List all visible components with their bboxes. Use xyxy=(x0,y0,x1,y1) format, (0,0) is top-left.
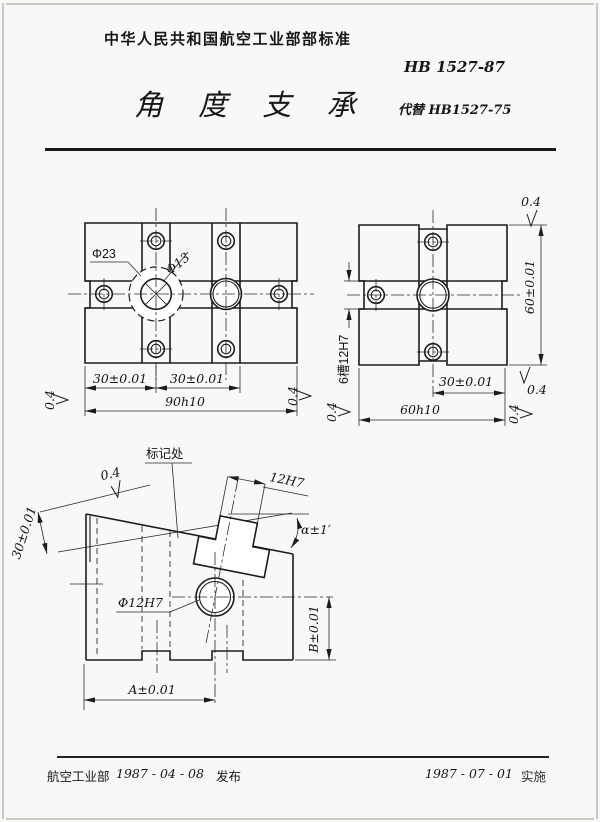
section-dim-30: 30±0.01 xyxy=(8,505,47,561)
side-finish-bottom-left: 0.4 xyxy=(324,402,350,422)
svg-text:B±0.01: B±0.01 xyxy=(306,605,321,654)
side-finish-right: 0.4 xyxy=(520,367,547,397)
svg-text:0.4: 0.4 xyxy=(521,194,541,209)
svg-text:α±1′: α±1′ xyxy=(301,522,331,537)
side-dim-width: 60h10 xyxy=(400,402,440,417)
drawing-canvas: Φ23 Φ13 30±0.01 30±0.01 90h10 0.4 0.4 xyxy=(0,0,600,822)
front-finish-left: 0.4 xyxy=(42,390,68,410)
svg-text:0.4: 0.4 xyxy=(527,382,547,397)
footer-rule xyxy=(57,756,549,758)
front-small-holes xyxy=(96,233,288,358)
side-bottom-dimensions: 30±0.01 60h10 xyxy=(359,368,505,426)
section-view: 标记处 12H7 α±1′ 30±0.01 0.4 Φ12H7 xyxy=(8,447,336,710)
svg-text:0.4: 0.4 xyxy=(324,402,339,422)
svg-text:0.4: 0.4 xyxy=(42,390,57,410)
svg-text:A±0.01: A±0.01 xyxy=(127,682,175,697)
footer-impl-label: 实施 xyxy=(521,766,546,785)
svg-text:30±0.01: 30±0.01 xyxy=(8,505,39,561)
section-slot-dim: 12H7 xyxy=(220,469,308,523)
front-outline xyxy=(85,223,297,363)
front-dim-30-right: 30±0.01 xyxy=(170,371,224,386)
svg-text:0.4: 0.4 xyxy=(285,386,300,406)
front-counterbore-label: Φ23 xyxy=(92,247,116,261)
section-dim-a: A±0.01 xyxy=(84,664,215,710)
footer-release-date: 1987 - 04 - 08 xyxy=(116,766,204,781)
section-hole-label: Φ12H7 xyxy=(118,595,163,610)
footer-org: 航空工业部 xyxy=(47,766,110,785)
front-dim-width: 90h10 xyxy=(165,394,205,409)
side-finish-bottom-right: 0.4 xyxy=(506,404,532,424)
side-dim-height: 60±0.01 xyxy=(509,225,547,365)
front-finish-right: 0.4 xyxy=(285,386,311,406)
section-dim-b: B±0.01 xyxy=(295,597,336,660)
side-finish-top: 0.4 xyxy=(521,194,541,226)
footer-release-label: 发布 xyxy=(216,766,241,785)
marking-note: 标记处 xyxy=(146,447,184,461)
front-dim-30-left: 30±0.01 xyxy=(93,371,147,386)
front-view: Φ23 Φ13 30±0.01 30±0.01 90h10 0.4 0.4 xyxy=(42,208,314,416)
section-centerlines xyxy=(157,479,333,706)
svg-text:0.4: 0.4 xyxy=(99,464,122,483)
side-slot-note: 6槽12H7 xyxy=(337,335,351,384)
svg-text:12H7: 12H7 xyxy=(268,469,305,490)
side-slot-dim: 6槽12H7 xyxy=(337,262,359,384)
section-bottom-edge xyxy=(86,651,293,660)
side-dim-30: 30±0.01 xyxy=(439,374,493,389)
side-view: 6槽12H7 60±0.01 0.4 0.4 0.4 0.4 xyxy=(324,194,547,426)
svg-text:60±0.01: 60±0.01 xyxy=(522,260,537,314)
front-dimensions: 30±0.01 30±0.01 90h10 0.4 0.4 xyxy=(42,366,311,416)
footer-impl-date: 1987 - 07 - 01 xyxy=(425,766,513,781)
svg-text:0.4: 0.4 xyxy=(506,404,521,424)
